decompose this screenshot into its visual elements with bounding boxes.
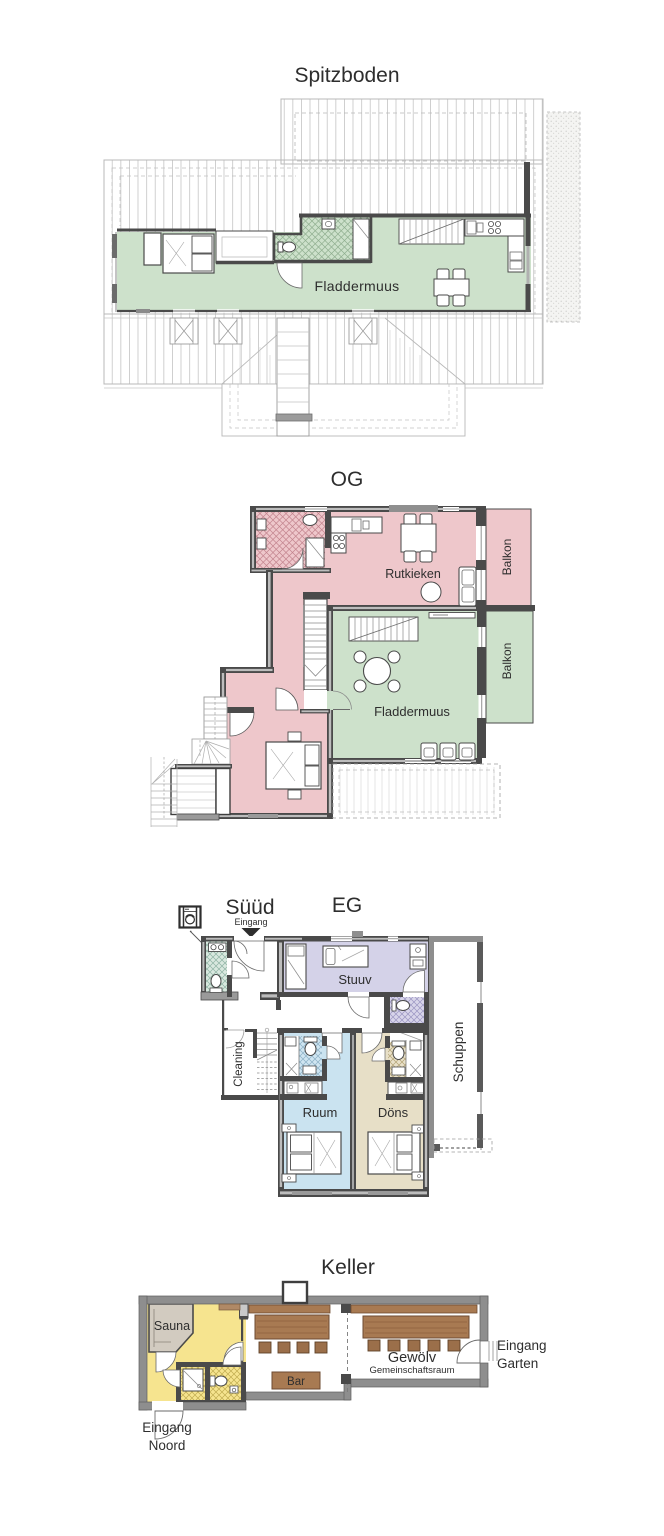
svg-text:OG: OG xyxy=(331,468,364,491)
svg-text:Fladdermuus: Fladdermuus xyxy=(374,704,450,719)
svg-text:EG: EG xyxy=(332,894,362,917)
svg-text:Spitzboden: Spitzboden xyxy=(294,64,399,87)
svg-text:Garten: Garten xyxy=(497,1356,538,1371)
svg-text:Stuuv: Stuuv xyxy=(338,972,372,987)
svg-text:Eingang: Eingang xyxy=(497,1338,547,1353)
svg-text:Ruum: Ruum xyxy=(303,1105,338,1120)
svg-text:Sauna: Sauna xyxy=(154,1319,190,1333)
svg-text:Gemeinschaftsraum: Gemeinschaftsraum xyxy=(369,1365,454,1376)
svg-text:Fladdermuus: Fladdermuus xyxy=(314,278,399,294)
svg-text:Bar: Bar xyxy=(287,1376,305,1388)
svg-text:Cleaning: Cleaning xyxy=(233,1041,245,1086)
svg-text:Süüd: Süüd xyxy=(225,896,274,919)
svg-text:Keller: Keller xyxy=(321,1256,375,1279)
svg-text:Noord: Noord xyxy=(149,1438,186,1453)
svg-text:Balkon: Balkon xyxy=(500,539,514,576)
svg-text:Rutkieken: Rutkieken xyxy=(385,567,441,581)
svg-text:Gewölv: Gewölv xyxy=(388,1350,437,1366)
svg-text:Balkon: Balkon xyxy=(500,643,514,680)
svg-text:Eingang: Eingang xyxy=(142,1420,192,1435)
svg-text:Döns: Döns xyxy=(378,1105,409,1120)
svg-text:Schuppen: Schuppen xyxy=(451,1022,466,1083)
svg-text:Eingang: Eingang xyxy=(234,917,267,927)
